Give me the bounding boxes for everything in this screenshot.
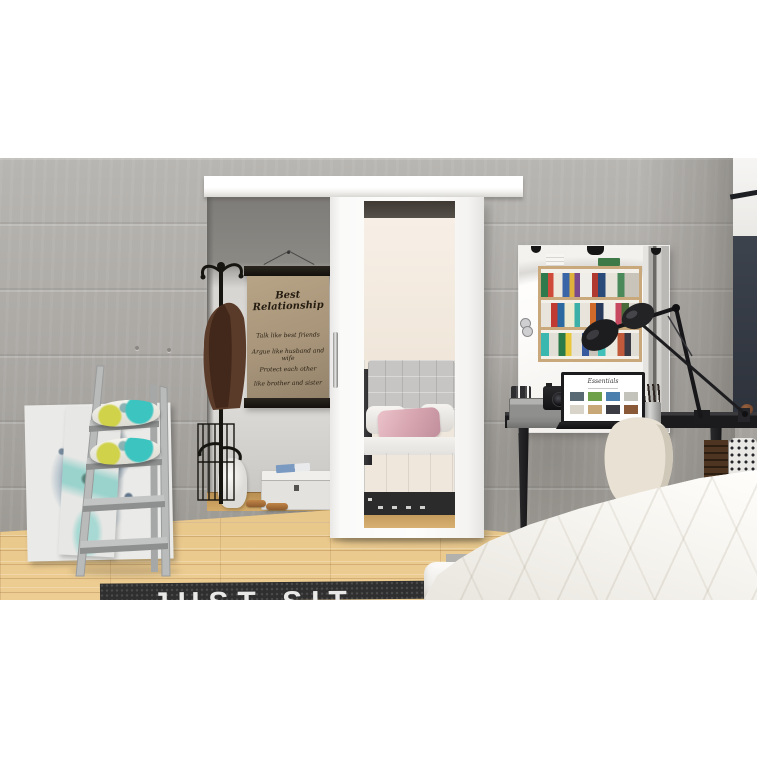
mirror-clip — [587, 246, 604, 255]
storage-chest-latch — [294, 485, 299, 491]
doorway-left-jamb — [207, 196, 214, 510]
poster-nail — [287, 251, 290, 254]
laptop-site-title: Essentials — [564, 378, 642, 385]
mirror-reflection-rug — [364, 492, 455, 515]
poster-line: Protect each other — [247, 365, 329, 373]
laptop-thumbnail — [606, 405, 620, 414]
sliding-door — [330, 197, 484, 538]
books-on-top-of-shelf — [546, 254, 564, 266]
clay-pot — [741, 404, 753, 414]
poster-bottom-bar — [244, 398, 332, 408]
mirror-reflection-floor — [364, 515, 455, 528]
wall-tie-hole — [135, 346, 139, 350]
laptop-thumbnail — [624, 392, 638, 401]
poster-top-bar — [244, 266, 332, 276]
storage-chest-lid — [261, 480, 333, 481]
sandal — [266, 503, 288, 510]
laptop-screen: Essentials — [561, 372, 645, 424]
door-mirror — [364, 201, 455, 528]
poster-title: Best Relationship — [247, 289, 330, 314]
laptop-thumbnail — [606, 392, 620, 401]
doormat-rug: JUST SIT — [100, 580, 470, 600]
camera-knob — [546, 383, 552, 387]
right-room-dark-wall — [733, 236, 757, 428]
mirror-reflection-pink-pillow — [377, 407, 441, 441]
book-row — [541, 333, 639, 356]
laptop-thumbnail — [588, 405, 602, 414]
photo-canvas: Best Relationship Talk like best friends… — [0, 0, 757, 757]
poster-paper: Best Relationship Talk like best friends… — [247, 276, 329, 398]
green-book — [598, 258, 620, 266]
laptop-thumbnail — [570, 405, 584, 414]
sliding-door-track — [204, 176, 523, 197]
poster-line: Argue like husband and wife — [247, 347, 329, 362]
mirror-reflection-wall — [364, 218, 455, 360]
laptop-site-subtitle-rule — [588, 388, 618, 389]
abstract-painting-small — [58, 407, 122, 558]
poster-line: like brother and sister — [247, 379, 329, 387]
reflected-bookshelf — [538, 266, 642, 362]
headphones-on-mirror — [520, 318, 533, 338]
laptop-thumbnail — [570, 392, 584, 401]
mirror-reflection-bed-base — [364, 453, 455, 493]
quote-poster: Best Relationship Talk like best friends… — [244, 266, 332, 408]
white-bag — [218, 458, 247, 508]
right-room-ceiling — [733, 158, 757, 242]
shelf-bar — [541, 327, 639, 330]
laptop-thumbnail — [588, 392, 602, 401]
poster-line: Talk like best friends — [247, 331, 329, 339]
room-photo: Best Relationship Talk like best friends… — [0, 158, 757, 600]
pens-and-brushes — [644, 384, 660, 403]
sandal — [246, 500, 266, 507]
laptop-thumbnail — [624, 405, 638, 414]
rug-text: JUST SIT — [152, 585, 356, 600]
laptop-base — [556, 422, 650, 429]
book-row — [541, 303, 639, 327]
shelf-bar — [541, 297, 639, 300]
ladder-floor-shadow — [70, 566, 180, 576]
door-handle — [333, 332, 338, 388]
wall-tie-hole — [167, 348, 171, 352]
mirror-reflection-ceiling — [364, 201, 455, 218]
headphone-cup — [522, 326, 533, 337]
book-row — [541, 273, 639, 297]
mirror-reflection-headboard — [368, 360, 455, 410]
